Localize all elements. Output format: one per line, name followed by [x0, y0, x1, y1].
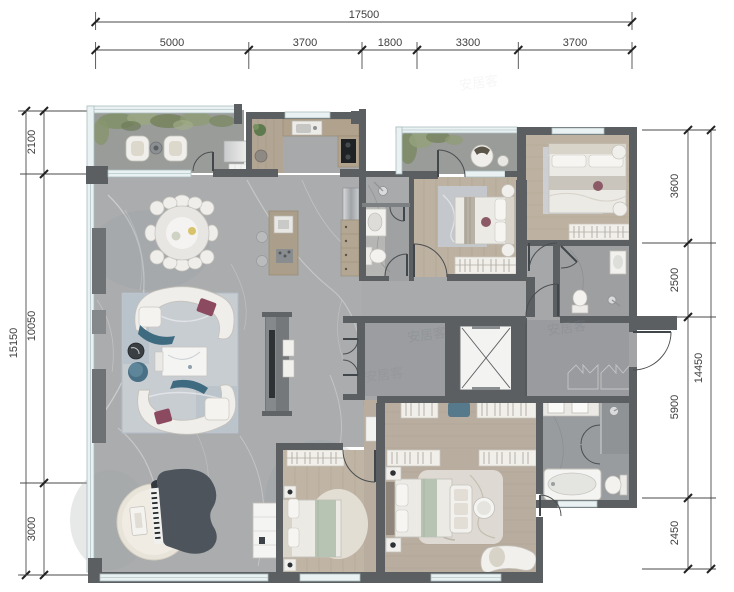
svg-text:15150: 15150 — [8, 328, 20, 359]
svg-text:2450: 2450 — [669, 521, 681, 545]
svg-text:5000: 5000 — [160, 37, 184, 49]
svg-text:1800: 1800 — [378, 37, 402, 49]
svg-text:10050: 10050 — [26, 311, 38, 342]
svg-text:14450: 14450 — [693, 353, 705, 384]
svg-text:3700: 3700 — [563, 37, 587, 49]
svg-text:2500: 2500 — [669, 268, 681, 292]
svg-text:17500: 17500 — [349, 9, 380, 21]
svg-text:3300: 3300 — [456, 37, 480, 49]
svg-text:3600: 3600 — [669, 174, 681, 198]
svg-text:3700: 3700 — [293, 37, 317, 49]
svg-text:2100: 2100 — [26, 130, 38, 154]
svg-text:5900: 5900 — [669, 395, 681, 419]
svg-text:3000: 3000 — [26, 517, 38, 541]
